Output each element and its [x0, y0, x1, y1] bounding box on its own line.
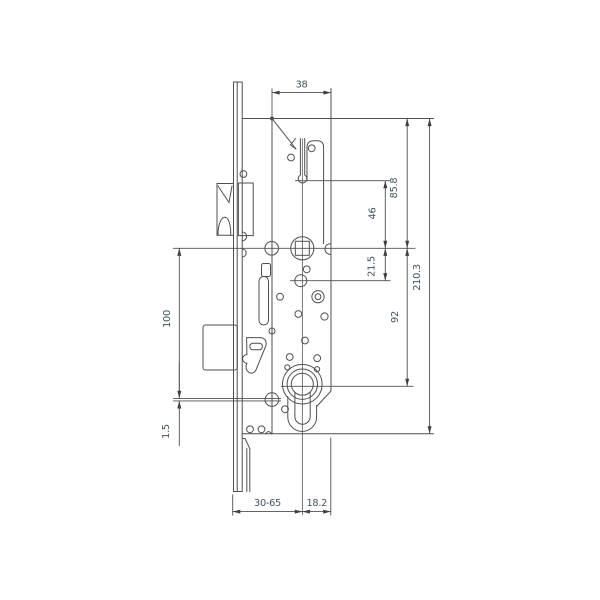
faceplate — [234, 82, 250, 492]
rivet-hole — [308, 145, 315, 152]
lock-case — [242, 89, 433, 516]
dim-label: 30-65 — [254, 498, 281, 509]
corner-chamfer — [272, 119, 296, 150]
case-corner-cut — [317, 391, 331, 407]
edge-notch — [325, 244, 331, 255]
dim-label: 92 — [390, 311, 401, 323]
collar-bump — [285, 365, 290, 370]
rivet-hole — [295, 311, 302, 318]
arrowhead — [295, 510, 303, 514]
rivet-hole — [303, 266, 310, 273]
lock-technical-drawing: 38 100 1.5 46 21.5 85.8 92 — [0, 0, 600, 600]
product-drawing-canvas: 38 100 1.5 46 21.5 85.8 92 — [0, 0, 600, 600]
dim-offset: 1.5 — [161, 363, 182, 446]
latch-dome — [218, 217, 231, 235]
square-cutout — [262, 264, 271, 277]
dim-label: 21.5 — [367, 256, 378, 277]
reference-lines — [173, 89, 416, 516]
rivet-hole — [288, 154, 295, 161]
arrowhead — [272, 91, 280, 95]
corner-dot — [270, 117, 274, 121]
arrowhead — [405, 119, 409, 127]
arrowhead — [428, 426, 432, 434]
cam-slot — [250, 343, 263, 350]
arrowhead — [405, 248, 409, 256]
deadbolt-body — [203, 325, 237, 370]
dim-label: 18.2 — [306, 498, 327, 509]
dim-label: 38 — [296, 80, 308, 91]
guide-slot — [259, 277, 269, 326]
latch-bolt — [217, 171, 253, 257]
arrowhead — [177, 248, 181, 256]
euro-cylinder-cutout — [283, 364, 332, 431]
plate-hole — [240, 171, 247, 178]
rivet-hole — [258, 426, 265, 433]
dim-top-width: 38 — [272, 80, 331, 95]
arrowhead — [383, 241, 387, 249]
bushing-outer — [312, 291, 324, 303]
arrowhead — [405, 241, 409, 249]
dim-axis-to-back: 18.2 — [302, 498, 330, 514]
arrowhead — [177, 401, 181, 409]
dim-follower-to-hole: 21.5 — [367, 248, 388, 280]
dim-label: 210.3 — [412, 264, 423, 291]
arrowhead — [383, 273, 387, 281]
arrowhead — [323, 510, 331, 514]
latch-bevel — [218, 186, 232, 203]
rivet-hole — [314, 355, 321, 362]
dim-label: 1.5 — [161, 424, 172, 439]
case-internals — [243, 145, 329, 413]
arrowhead — [233, 510, 241, 514]
dim-label: 46 — [368, 208, 379, 220]
arrowhead — [177, 391, 181, 399]
dim-slot-to-follower: 46 — [368, 181, 388, 249]
rivet-hole — [247, 426, 254, 433]
latch-tab — [242, 249, 246, 257]
arrowhead — [383, 181, 387, 189]
dim-follower-to-cylinder: 92 — [390, 248, 409, 386]
dim-label: 85.8 — [389, 178, 400, 199]
arrowhead — [383, 248, 387, 256]
arrowhead — [405, 379, 409, 387]
dim-total-height: 210.3 — [412, 119, 432, 434]
bushing-inner — [315, 294, 321, 300]
dim-label: 100 — [162, 310, 173, 328]
rivet-hole — [321, 313, 328, 320]
dim-case-top-to-follower: 85.8 — [389, 119, 409, 249]
latch-tab — [242, 232, 246, 241]
deadbolt — [203, 325, 237, 370]
arrowhead — [302, 510, 310, 514]
latch-housing — [238, 183, 253, 236]
arrowhead — [428, 119, 432, 127]
dim-faceplate-span: 100 — [162, 248, 182, 398]
dim-backset-range: 30-65 — [233, 498, 303, 514]
inner-plate — [307, 141, 324, 181]
rivet-hole — [277, 293, 284, 300]
arrowhead — [323, 91, 331, 95]
rivet-hole — [286, 354, 293, 361]
rail-step — [242, 439, 250, 449]
